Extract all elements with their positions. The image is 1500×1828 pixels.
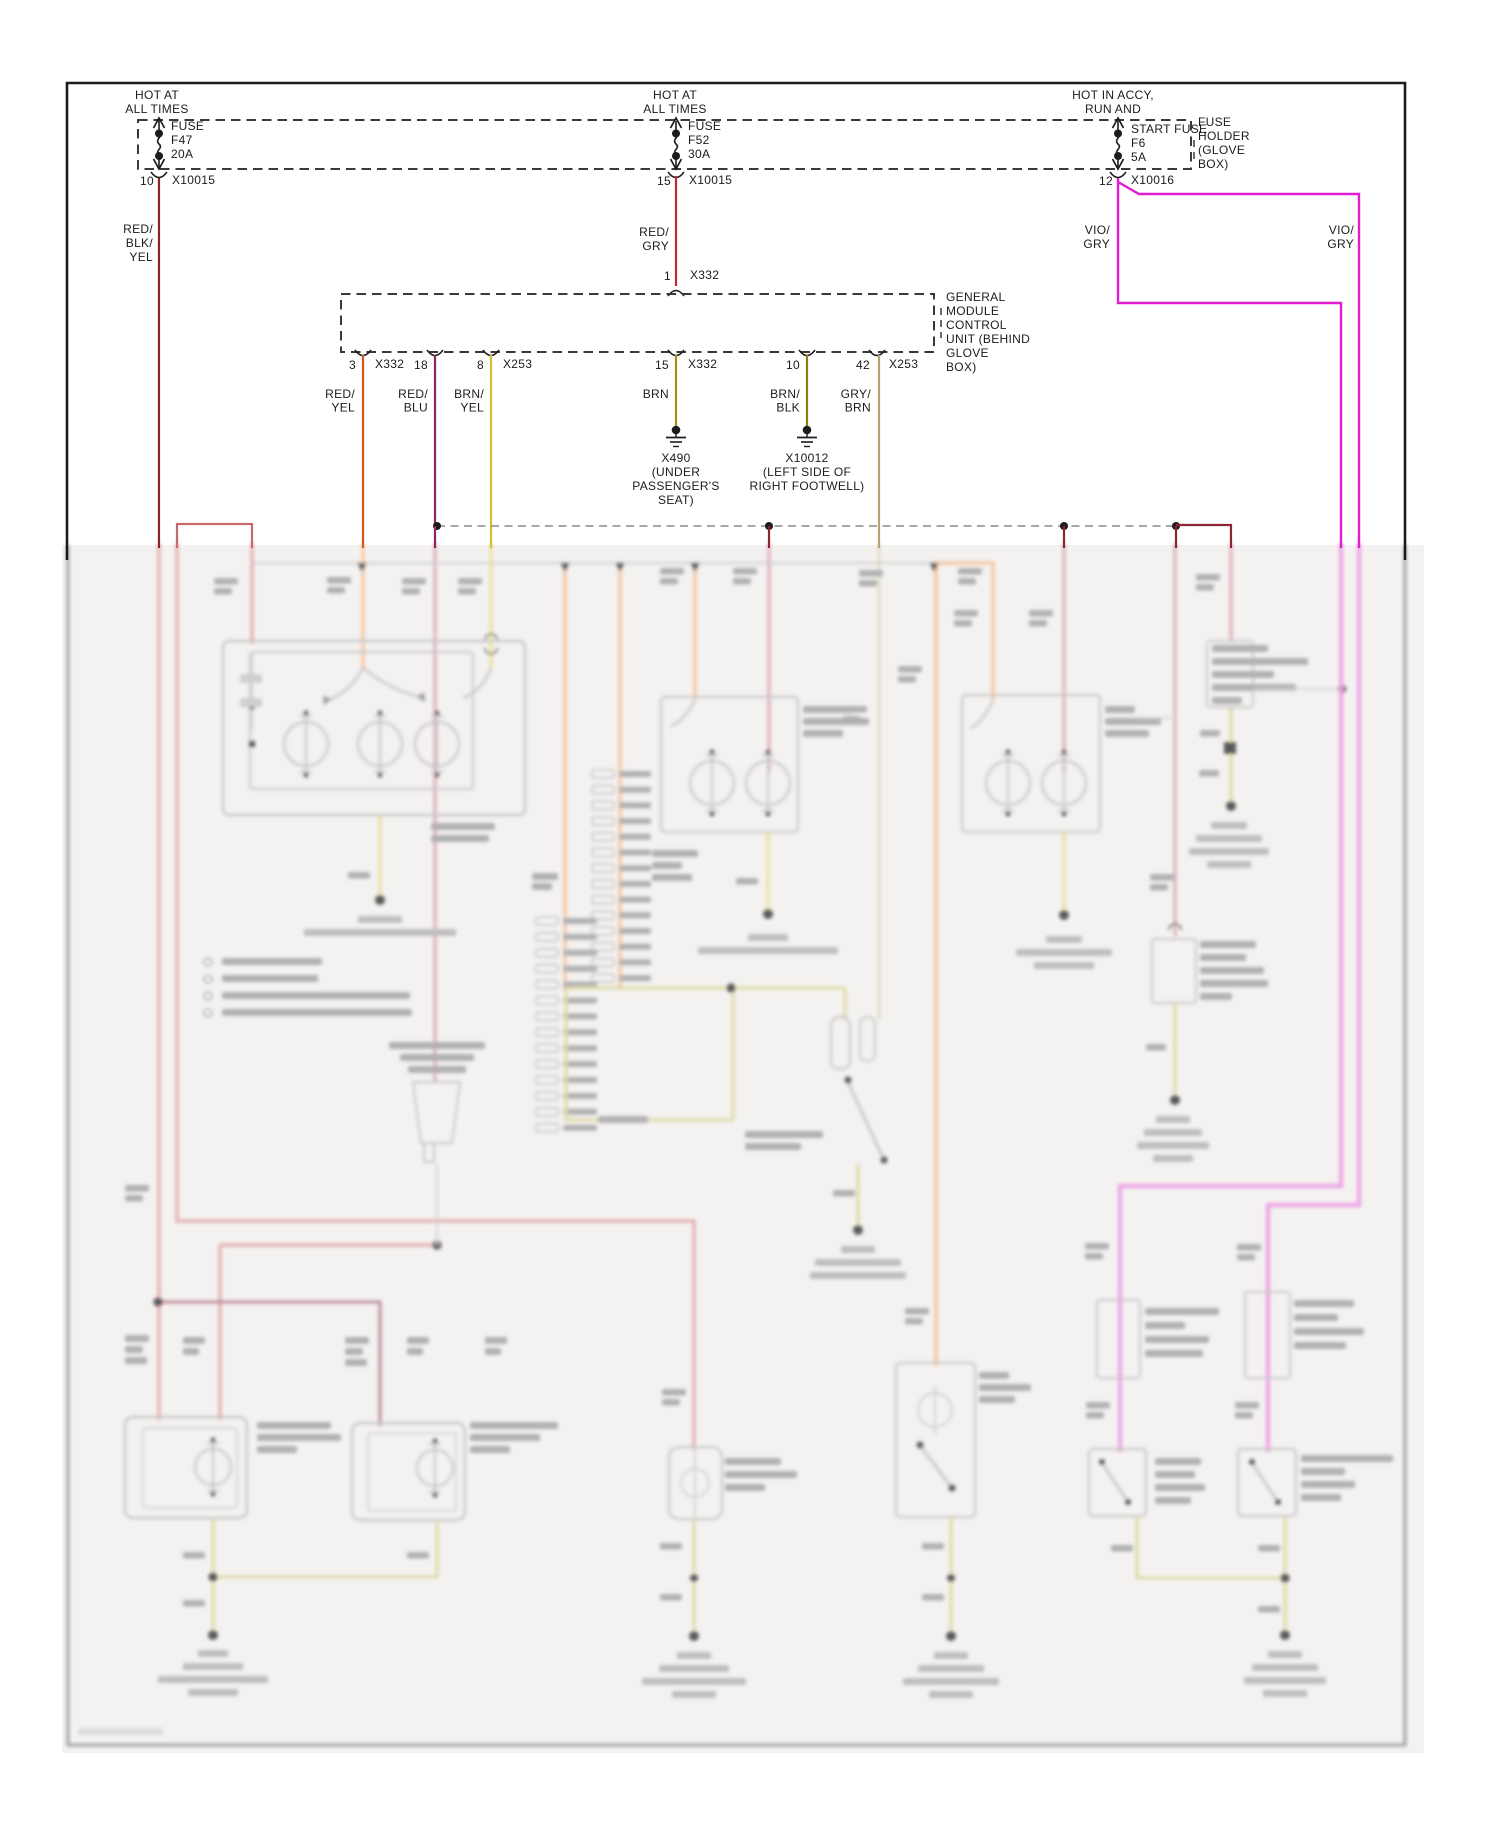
svg-text:RED/: RED/ (325, 387, 355, 401)
svg-text:BRN/: BRN/ (454, 387, 484, 401)
svg-text:10: 10 (786, 358, 800, 372)
svg-text:RED/: RED/ (398, 387, 428, 401)
svg-text:ALL TIMES: ALL TIMES (643, 102, 706, 116)
svg-text:YEL: YEL (129, 250, 153, 264)
svg-text:BLU: BLU (404, 401, 428, 415)
svg-text:F47: F47 (171, 133, 193, 147)
svg-text:X332: X332 (688, 357, 717, 371)
svg-text:VIO/: VIO/ (1329, 223, 1355, 237)
svg-text:X10012: X10012 (785, 451, 828, 465)
svg-text:GRY: GRY (1083, 237, 1110, 251)
svg-text:18: 18 (414, 358, 428, 372)
svg-text:HOT IN ACCY,: HOT IN ACCY, (1072, 88, 1154, 102)
svg-text:12: 12 (1099, 174, 1113, 188)
svg-text:YEL: YEL (460, 401, 484, 415)
svg-text:(LEFT SIDE OF: (LEFT SIDE OF (763, 465, 851, 479)
svg-text:MODULE: MODULE (946, 304, 999, 318)
svg-text:START FUSE: START FUSE (1131, 122, 1207, 136)
svg-text:X10016: X10016 (1131, 173, 1174, 187)
svg-text:BRN/: BRN/ (770, 387, 800, 401)
svg-text:15: 15 (655, 358, 669, 372)
svg-text:42: 42 (856, 358, 870, 372)
svg-text:CONTROL: CONTROL (946, 318, 1007, 332)
svg-text:15: 15 (657, 174, 671, 188)
svg-text:BOX): BOX) (1198, 157, 1229, 171)
svg-text:X332: X332 (375, 357, 404, 371)
svg-text:UNIT (BEHIND: UNIT (BEHIND (946, 332, 1030, 346)
svg-text:VIO/: VIO/ (1085, 223, 1111, 237)
svg-text:FUSE: FUSE (688, 119, 721, 133)
svg-text:FUSE: FUSE (171, 119, 204, 133)
svg-text:BLK: BLK (776, 401, 800, 415)
svg-text:30A: 30A (688, 147, 710, 161)
svg-text:GRY/: GRY/ (841, 387, 872, 401)
svg-text:(UNDER: (UNDER (652, 465, 700, 479)
svg-text:GENERAL: GENERAL (946, 290, 1005, 304)
svg-text:SEAT): SEAT) (658, 493, 694, 507)
svg-text:BLK/: BLK/ (126, 236, 154, 250)
svg-text:BRN: BRN (643, 387, 669, 401)
svg-text:10: 10 (140, 174, 154, 188)
svg-text:X253: X253 (503, 357, 532, 371)
svg-text:GRY: GRY (642, 239, 669, 253)
svg-text:X332: X332 (690, 268, 719, 282)
svg-text:ALL TIMES: ALL TIMES (125, 102, 188, 116)
svg-text:YEL: YEL (331, 401, 355, 415)
svg-text:BRN: BRN (845, 401, 871, 415)
svg-text:RED/: RED/ (123, 222, 153, 236)
svg-text:(GLOVE: (GLOVE (1198, 143, 1245, 157)
svg-text:RIGHT FOOTWELL): RIGHT FOOTWELL) (750, 479, 865, 493)
svg-text:RUN AND: RUN AND (1085, 102, 1141, 116)
svg-text:5A: 5A (1131, 150, 1146, 164)
svg-text:HOT AT: HOT AT (135, 88, 179, 102)
svg-text:GLOVE: GLOVE (946, 346, 989, 360)
svg-text:HOT AT: HOT AT (653, 88, 697, 102)
svg-text:X10015: X10015 (689, 173, 732, 187)
svg-text:3: 3 (349, 358, 356, 372)
svg-text:20A: 20A (171, 147, 193, 161)
svg-text:RED/: RED/ (639, 225, 669, 239)
svg-text:X490: X490 (661, 451, 690, 465)
svg-text:F6: F6 (1131, 136, 1146, 150)
svg-text:F52: F52 (688, 133, 710, 147)
svg-text:X253: X253 (889, 357, 918, 371)
svg-text:X10015: X10015 (172, 173, 215, 187)
svg-text:PASSENGER'S: PASSENGER'S (632, 479, 719, 493)
svg-text:1: 1 (664, 269, 671, 283)
svg-text:8: 8 (477, 358, 484, 372)
svg-text:BOX): BOX) (946, 360, 977, 374)
svg-text:GRY: GRY (1327, 237, 1354, 251)
